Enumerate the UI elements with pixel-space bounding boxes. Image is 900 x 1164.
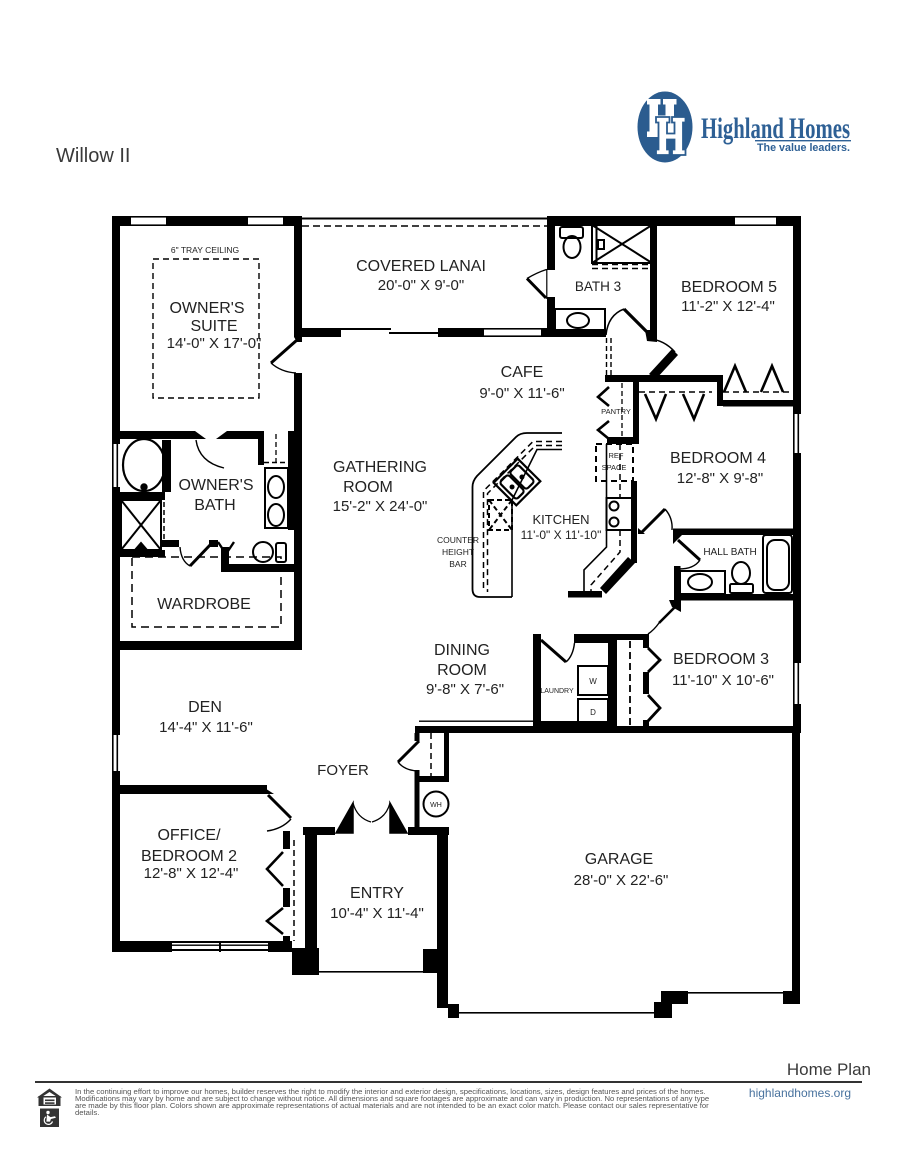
svg-text:KITCHEN: KITCHEN: [532, 512, 589, 527]
svg-text:Willow II: Willow II: [56, 145, 130, 167]
svg-text:6" TRAY CEILING: 6" TRAY CEILING: [171, 245, 239, 255]
svg-text:HEIGHT: HEIGHT: [442, 547, 474, 557]
svg-text:11'-0" X 11'-10": 11'-0" X 11'-10": [521, 528, 602, 542]
svg-text:15'-2" X 24'-0": 15'-2" X 24'-0": [333, 498, 428, 515]
svg-text:OWNER'S: OWNER'S: [178, 477, 253, 494]
svg-text:ENTRY: ENTRY: [350, 885, 404, 902]
svg-text:11'-2" X 12'-4": 11'-2" X 12'-4": [681, 298, 775, 315]
svg-text:PANTRY: PANTRY: [601, 407, 631, 416]
svg-text:20'-0" X 9'-0": 20'-0" X 9'-0": [378, 277, 464, 294]
svg-text:OWNER'S: OWNER'S: [169, 300, 244, 317]
svg-text:28'-0" X 22'-6": 28'-0" X 22'-6": [574, 872, 669, 889]
svg-text:Home Plan: Home Plan: [787, 1060, 871, 1079]
svg-text:GATHERING: GATHERING: [333, 459, 427, 476]
svg-text:DEN: DEN: [188, 699, 222, 716]
svg-text:COVERED LANAI: COVERED LANAI: [356, 258, 486, 275]
svg-text:9'-8" X 7'-6": 9'-8" X 7'-6": [426, 681, 504, 698]
svg-text:9'-0" X 11'-6": 9'-0" X 11'-6": [479, 385, 564, 402]
svg-text:W: W: [589, 677, 597, 686]
svg-text:OFFICE/: OFFICE/: [157, 827, 221, 844]
svg-text:WH: WH: [430, 802, 442, 809]
svg-text:REF: REF: [609, 451, 624, 460]
svg-text:details.: details.: [75, 1108, 99, 1117]
svg-text:BEDROOM 4: BEDROOM 4: [670, 450, 766, 467]
svg-text:WARDROBE: WARDROBE: [157, 596, 251, 613]
svg-text:COUNTER: COUNTER: [437, 535, 479, 545]
svg-text:FOYER: FOYER: [317, 762, 369, 779]
svg-text:11'-10" X 10'-6": 11'-10" X 10'-6": [672, 672, 774, 689]
svg-text:DINING: DINING: [434, 642, 490, 659]
svg-text:highlandhomes.org: highlandhomes.org: [749, 1086, 851, 1100]
svg-text:BATH 3: BATH 3: [575, 279, 621, 294]
svg-text:14'-0" X 17'-0": 14'-0" X 17'-0": [167, 335, 262, 352]
svg-text:14'-4" X 11'-6": 14'-4" X 11'-6": [159, 719, 253, 736]
svg-text:D: D: [590, 708, 596, 717]
svg-text:BEDROOM 5: BEDROOM 5: [681, 279, 777, 296]
svg-text:10'-4" X 11'-4": 10'-4" X 11'-4": [330, 905, 424, 922]
svg-text:BEDROOM 3: BEDROOM 3: [673, 651, 769, 668]
svg-text:BAR: BAR: [449, 559, 466, 569]
svg-text:LAUNDRY: LAUNDRY: [540, 688, 574, 695]
svg-text:The value leaders.: The value leaders.: [757, 142, 850, 154]
svg-text:12'-8" X 12'-4": 12'-8" X 12'-4": [144, 865, 239, 882]
svg-text:ROOM: ROOM: [343, 479, 393, 496]
svg-text:CAFE: CAFE: [501, 364, 544, 381]
svg-text:are made by this floor plan. C: are made by this floor plan. Colors show…: [75, 1101, 709, 1110]
svg-text:GARAGE: GARAGE: [585, 851, 653, 868]
svg-text:SUITE: SUITE: [190, 318, 237, 335]
svg-text:BATH: BATH: [194, 497, 235, 514]
svg-text:12'-8" X 9'-8": 12'-8" X 9'-8": [677, 470, 763, 487]
svg-text:ROOM: ROOM: [437, 662, 487, 679]
svg-text:BEDROOM 2: BEDROOM 2: [141, 848, 237, 865]
svg-text:HALL BATH: HALL BATH: [703, 547, 756, 558]
svg-text:SPACE: SPACE: [602, 463, 627, 472]
